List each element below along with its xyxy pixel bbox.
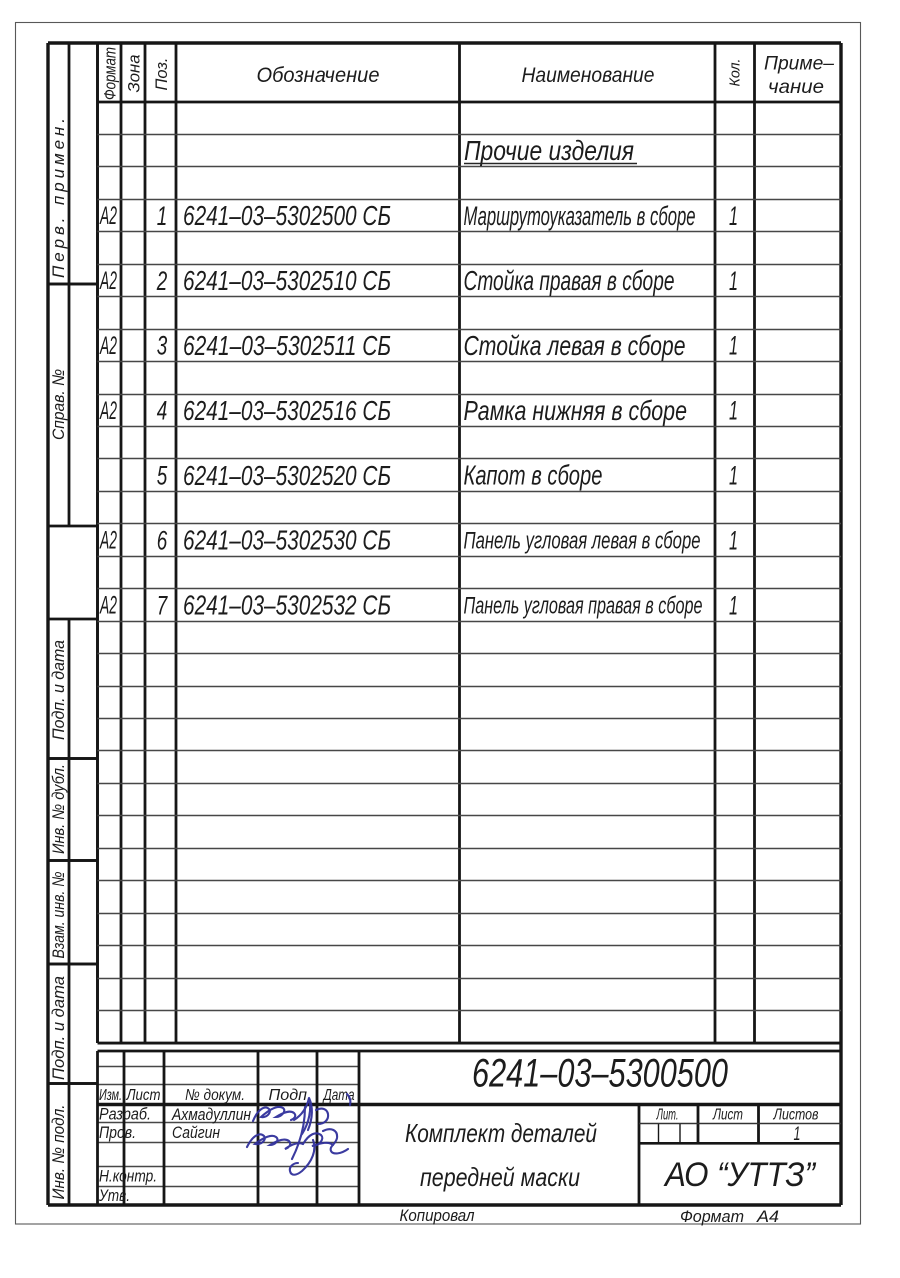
svg-text:3: 3 (157, 331, 168, 361)
svg-text:Зона: Зона (124, 55, 143, 93)
svg-text:6241–03–5302520 СБ: 6241–03–5302520 СБ (183, 460, 391, 491)
svg-text:6241–03–5302510 СБ: 6241–03–5302510 СБ (183, 265, 391, 296)
svg-text:Маршрутоуказатель в сборе: Маршрутоуказатель в сборе (464, 201, 696, 231)
svg-text:Лист: Лист (126, 1087, 161, 1104)
svg-text:Утв.: Утв. (98, 1187, 130, 1205)
svg-text:Стойка правая в сборе: Стойка правая в сборе (464, 265, 675, 296)
svg-text:Листов: Листов (773, 1107, 819, 1124)
svg-text:6241–03–5302511 СБ: 6241–03–5302511 СБ (183, 330, 391, 361)
svg-text:Приме–: Приме– (764, 53, 834, 75)
svg-text:5: 5 (157, 461, 168, 491)
svg-text:Взам. инв. №: Взам. инв. № (49, 872, 68, 959)
svg-text:Наименование: Наименование (522, 63, 655, 87)
svg-text:Н.контр.: Н.контр. (99, 1168, 157, 1186)
svg-text:Кол.: Кол. (727, 59, 744, 87)
svg-text:Инв. № подл.: Инв. № подл. (49, 1105, 68, 1200)
svg-text:Лит.: Лит. (656, 1107, 679, 1124)
svg-text:А2: А2 (99, 592, 117, 620)
svg-text:Подп. и дата: Подп. и дата (49, 640, 68, 740)
svg-text:Прочие изделия: Прочие изделия (464, 135, 634, 166)
svg-text:2: 2 (156, 266, 167, 296)
svg-text:1: 1 (729, 461, 738, 491)
svg-text:Разраб.: Разраб. (99, 1106, 151, 1124)
svg-text:6241–03–5302516 СБ: 6241–03–5302516 СБ (183, 395, 391, 426)
svg-text:7: 7 (157, 590, 168, 620)
svg-text:Копировал: Копировал (400, 1206, 475, 1225)
svg-text:Обозначение: Обозначение (257, 63, 380, 87)
svg-text:1: 1 (157, 201, 168, 231)
svg-text:Формат: Формат (100, 47, 119, 100)
svg-text:Изм.: Изм. (99, 1087, 122, 1104)
svg-text:1: 1 (794, 1124, 801, 1145)
svg-text:Капот в сборе: Капот в сборе (464, 460, 603, 491)
svg-text:Поз.: Поз. (152, 58, 171, 91)
svg-text:1: 1 (729, 201, 738, 231)
svg-text:6241–03–5302500 СБ: 6241–03–5302500 СБ (183, 200, 391, 231)
svg-text:Ахмадуллин: Ахмадуллин (171, 1106, 251, 1124)
svg-text:А2: А2 (99, 527, 117, 555)
svg-text:1: 1 (729, 331, 738, 361)
svg-text:чание: чание (768, 76, 824, 98)
svg-text:6241–03–5300500: 6241–03–5300500 (472, 1051, 728, 1095)
svg-text:АО “УТТЗ”: АО “УТТЗ” (663, 1156, 816, 1194)
svg-text:А2: А2 (99, 202, 117, 230)
svg-text:Перв. примен.: Перв. примен. (49, 118, 68, 278)
svg-text:1: 1 (729, 266, 738, 296)
svg-text:Сайгин: Сайгин (172, 1124, 220, 1142)
svg-text:Подп. и дата: Подп. и дата (49, 976, 68, 1080)
svg-text:№ докум.: № докум. (185, 1087, 245, 1104)
svg-text:Комплект деталей: Комплект деталей (405, 1118, 597, 1148)
svg-text:А2: А2 (99, 267, 117, 295)
svg-text:1: 1 (729, 590, 738, 620)
svg-text:Лист: Лист (712, 1107, 743, 1124)
svg-text:Панель угловая правая в сборе: Панель угловая правая в сборе (464, 592, 703, 619)
svg-text:1: 1 (729, 396, 738, 426)
svg-text:Панель угловая левая в сборе: Панель угловая левая в сборе (464, 527, 701, 554)
svg-text:А2: А2 (99, 332, 117, 360)
svg-text:Рамка нижняя в сборе: Рамка нижняя в сборе (464, 395, 688, 426)
svg-text:передней маски: передней маски (420, 1162, 580, 1192)
svg-text:Формат: Формат (680, 1207, 744, 1226)
svg-text:6241–03–5302532 СБ: 6241–03–5302532 СБ (183, 590, 391, 621)
svg-text:А4: А4 (756, 1207, 779, 1226)
svg-text:Инв. № дубл.: Инв. № дубл. (49, 764, 68, 854)
svg-text:Подп.: Подп. (269, 1087, 312, 1104)
svg-text:Стойка левая в сборе: Стойка левая в сборе (464, 330, 686, 361)
svg-text:Пров.: Пров. (99, 1124, 136, 1142)
svg-text:6241–03–5302530 СБ: 6241–03–5302530 СБ (183, 525, 391, 556)
svg-text:4: 4 (157, 396, 168, 426)
svg-text:1: 1 (729, 525, 738, 555)
svg-text:А2: А2 (99, 397, 117, 425)
svg-text:6: 6 (157, 525, 168, 555)
svg-text:Справ. №: Справ. № (49, 369, 68, 440)
